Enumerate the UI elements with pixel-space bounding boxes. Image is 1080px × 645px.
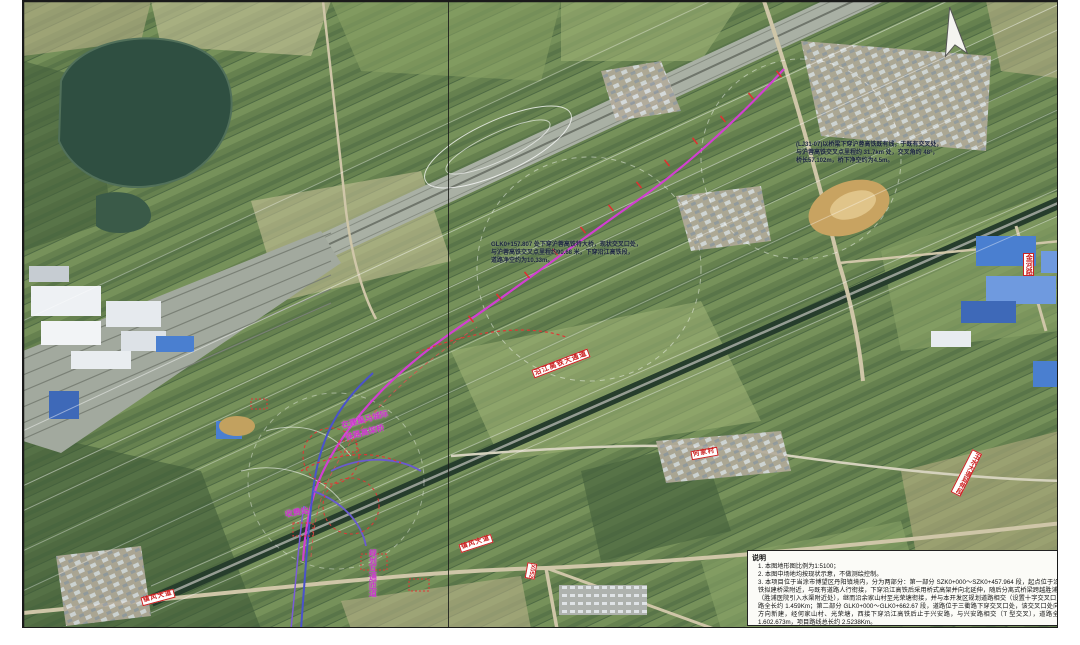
annotation-line: 道路净空约为10.33m。 — [491, 257, 671, 265]
annotation-line: 与沪蓉高铁交叉点里程约 31.7km 处，交叉角约 48°， — [796, 149, 1011, 157]
notes-box: 说明 1. 本图地形图比例为1:5100； 2. 本图中场地均按现状示意，不做测… — [747, 550, 1058, 626]
drawing-sheet: (LJ31-07)以桥梁下穿沪蓉高铁既有线，于既有交叉处， 与沪蓉高铁交叉点里程… — [0, 0, 1080, 645]
sheet-seam-line — [448, 1, 449, 628]
road-label-jinhe: 金河路 — [1023, 253, 1034, 276]
map-graphics — [22, 1, 1058, 628]
annotation-line: 与沪蓉高铁交叉点里程约90.68 米，下穿沿江高铁段， — [491, 249, 671, 257]
notes-title: 说明 — [752, 553, 1058, 563]
parking-lot — [559, 585, 647, 615]
annotation-line: (LJ31-07)以桥梁下穿沪蓉高铁既有线，于既有交叉处， — [796, 141, 1011, 149]
annotation-line: 桥长57.102m，桥下净空约为4.5m。 — [796, 157, 1011, 165]
annotation-middle: GLK0+157.807 处下穿沪蓉高铁特大桥，现状交叉口处， 与沪蓉高铁交叉点… — [491, 241, 671, 265]
notes-item: 1. 本图地形图比例为1:5100； — [758, 563, 1058, 571]
notes-item: 3. 本项目位于当涂市博望区丹阳镇境内，分为两部分：第一部分 SZK0+000～… — [758, 579, 1058, 627]
annotation-line: GLK0+157.807 处下穿沪蓉高铁特大桥，现状交叉口处， — [491, 241, 671, 249]
notes-item: 2. 本图中场地均按现状示意，不做测绘控制。 — [758, 571, 1058, 579]
satellite-plan-map: (LJ31-07)以桥梁下穿沪蓉高铁既有线，于既有交叉处， 与沪蓉高铁交叉点里程… — [22, 0, 1058, 628]
planned-ramp-label: 规划互通匝道 — [368, 549, 376, 597]
annotation-top-right: (LJ31-07)以桥梁下穿沪蓉高铁既有线，于既有交叉处， 与沪蓉高铁交叉点里程… — [796, 141, 1011, 165]
